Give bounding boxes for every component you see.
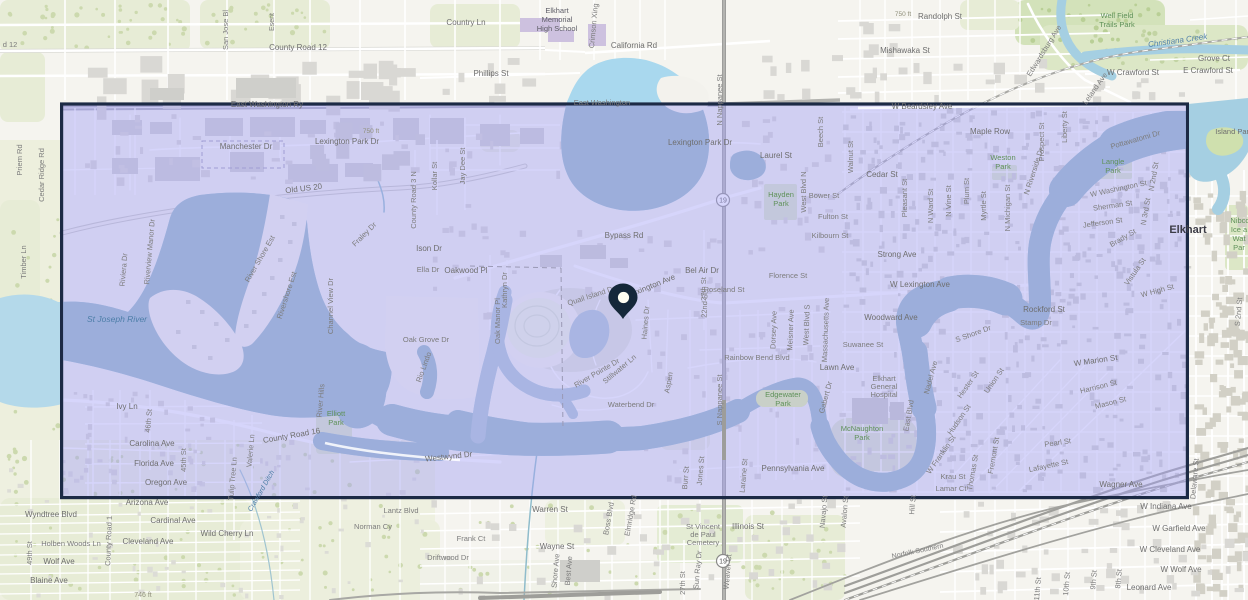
svg-text:California Rd: California Rd bbox=[611, 41, 657, 50]
svg-text:West Blvd N: West Blvd N bbox=[799, 171, 808, 212]
svg-text:Lamar Ct: Lamar Ct bbox=[936, 484, 968, 493]
svg-text:Fulton St: Fulton St bbox=[818, 212, 849, 221]
svg-text:Hospital: Hospital bbox=[870, 390, 897, 399]
svg-text:Cardinal Ave: Cardinal Ave bbox=[150, 516, 196, 525]
svg-text:N Ward St: N Ward St bbox=[926, 188, 935, 223]
svg-text:Warren St: Warren St bbox=[532, 505, 568, 514]
svg-text:Frank Ct: Frank Ct bbox=[457, 534, 487, 543]
svg-text:Strong Ave: Strong Ave bbox=[878, 250, 918, 259]
svg-text:Park: Park bbox=[995, 162, 1011, 171]
svg-text:8th St: 8th St bbox=[1113, 568, 1124, 589]
svg-text:Par: Par bbox=[1233, 243, 1245, 252]
svg-text:Laurel St: Laurel St bbox=[760, 151, 793, 160]
svg-text:Park: Park bbox=[854, 433, 870, 442]
svg-text:Hayden: Hayden bbox=[768, 190, 794, 199]
svg-text:Oak Manor Pl: Oak Manor Pl bbox=[493, 298, 502, 344]
svg-text:E Crawford St: E Crawford St bbox=[1183, 66, 1234, 75]
svg-text:Ice a: Ice a bbox=[1231, 225, 1248, 234]
svg-text:Cleveland Ave: Cleveland Ave bbox=[123, 537, 175, 546]
svg-text:High School: High School bbox=[537, 24, 578, 33]
svg-text:Krau St: Krau St bbox=[940, 472, 966, 481]
svg-text:Wagner Ave: Wagner Ave bbox=[1099, 480, 1143, 489]
svg-text:Roseland St: Roseland St bbox=[704, 285, 746, 294]
svg-text:Bower St: Bower St bbox=[809, 191, 840, 200]
svg-text:Plum St: Plum St bbox=[962, 177, 971, 204]
svg-text:Mishawaka St: Mishawaka St bbox=[880, 46, 931, 55]
svg-text:750 ft: 750 ft bbox=[363, 128, 379, 135]
svg-text:Stamp Dr: Stamp Dr bbox=[1020, 318, 1052, 327]
svg-text:Rockford St: Rockford St bbox=[1023, 305, 1066, 314]
svg-text:Memorial: Memorial bbox=[542, 15, 573, 24]
svg-text:Lexington Park Dr: Lexington Park Dr bbox=[668, 138, 732, 147]
svg-text:W Wolf Ave: W Wolf Ave bbox=[1160, 565, 1202, 574]
svg-text:Langle: Langle bbox=[1102, 157, 1125, 166]
svg-text:Cedar St: Cedar St bbox=[866, 170, 898, 179]
svg-text:San Jose Bl: San Jose Bl bbox=[221, 10, 230, 50]
svg-text:Park: Park bbox=[775, 399, 791, 408]
svg-text:East Washington Ry: East Washington Ry bbox=[231, 100, 303, 109]
svg-text:750 ft: 750 ft bbox=[895, 11, 911, 18]
svg-text:Florence St: Florence St bbox=[769, 271, 808, 280]
svg-text:Lantz Blvd: Lantz Blvd bbox=[383, 506, 418, 515]
svg-text:Norman Cy: Norman Cy bbox=[354, 522, 392, 531]
svg-text:Island Park: Island Park bbox=[1215, 127, 1248, 136]
svg-text:Waterbend Dr: Waterbend Dr bbox=[608, 400, 655, 409]
svg-text:W Garfield Ave: W Garfield Ave bbox=[1152, 524, 1206, 533]
svg-text:49th St: 49th St bbox=[25, 540, 34, 565]
svg-text:Country Ln: Country Ln bbox=[446, 18, 485, 27]
svg-text:Phillips St: Phillips St bbox=[473, 69, 509, 78]
svg-text:Nibco: Nibco bbox=[1230, 216, 1248, 225]
svg-text:Jay Dee St: Jay Dee St bbox=[458, 147, 467, 185]
svg-text:Rainbow Bend Blvd: Rainbow Bend Blvd bbox=[724, 353, 789, 362]
svg-text:Weston: Weston bbox=[990, 153, 1015, 162]
svg-text:Ison Dr: Ison Dr bbox=[416, 244, 442, 253]
svg-text:Bypass Rd: Bypass Rd bbox=[605, 231, 644, 240]
svg-text:N Nappanee St: N Nappanee St bbox=[715, 73, 724, 125]
svg-text:East Washington: East Washington bbox=[574, 98, 630, 107]
svg-text:W Beardsley Ave: W Beardsley Ave bbox=[892, 102, 953, 111]
svg-text:Oakwood Pl: Oakwood Pl bbox=[444, 266, 487, 275]
svg-text:W Indiana Ave: W Indiana Ave bbox=[1140, 502, 1192, 511]
svg-text:Lexington Park Dr: Lexington Park Dr bbox=[315, 137, 379, 146]
svg-text:Walnut St: Walnut St bbox=[846, 140, 855, 173]
svg-text:Kilbourn St: Kilbourn St bbox=[812, 231, 850, 240]
svg-text:Priem Rd: Priem Rd bbox=[15, 144, 24, 175]
svg-text:Illinois St: Illinois St bbox=[732, 522, 765, 531]
svg-text:Park: Park bbox=[773, 199, 789, 208]
svg-text:Cemetery: Cemetery bbox=[687, 538, 720, 547]
svg-text:Timber Ln: Timber Ln bbox=[19, 245, 28, 278]
svg-text:Kollar St: Kollar St bbox=[430, 161, 439, 190]
svg-text:S Nappanee St: S Nappanee St bbox=[715, 374, 724, 426]
svg-text:N Vine St: N Vine St bbox=[944, 184, 953, 216]
svg-text:Pleasant St: Pleasant St bbox=[900, 178, 909, 217]
svg-text:27th St: 27th St bbox=[678, 570, 687, 595]
svg-text:Wyndtree Blvd: Wyndtree Blvd bbox=[25, 510, 77, 519]
svg-text:Leonard Ave: Leonard Ave bbox=[1127, 583, 1172, 592]
svg-text:Well Field: Well Field bbox=[1101, 11, 1134, 20]
svg-text:d 12: d 12 bbox=[3, 40, 18, 49]
svg-text:Oregon Ave: Oregon Ave bbox=[145, 478, 188, 487]
svg-text:Wild Cherry Ln: Wild Cherry Ln bbox=[201, 529, 254, 538]
svg-text:Ivy Ln: Ivy Ln bbox=[116, 402, 137, 411]
svg-text:County Road 12: County Road 12 bbox=[269, 43, 327, 52]
svg-text:County Road 1: County Road 1 bbox=[103, 516, 114, 566]
svg-text:Park: Park bbox=[1105, 166, 1121, 175]
svg-text:Liberty St: Liberty St bbox=[1060, 110, 1069, 143]
svg-text:Grove Ct: Grove Ct bbox=[1198, 54, 1231, 63]
svg-text:Elkhart: Elkhart bbox=[545, 6, 569, 15]
svg-text:Manchester Dr: Manchester Dr bbox=[220, 142, 273, 151]
svg-text:Florida Ave: Florida Ave bbox=[134, 459, 174, 468]
svg-text:Myrtle St: Myrtle St bbox=[979, 190, 988, 221]
svg-text:45th St: 45th St bbox=[179, 447, 188, 472]
svg-text:Ella Dr: Ella Dr bbox=[417, 265, 440, 274]
svg-text:McNaughton: McNaughton bbox=[841, 424, 884, 433]
svg-text:N Michigan St: N Michigan St bbox=[1003, 184, 1012, 232]
svg-text:Wat: Wat bbox=[1232, 234, 1246, 243]
svg-text:W Cleveland Ave: W Cleveland Ave bbox=[1140, 545, 1201, 554]
svg-text:W Crawford St: W Crawford St bbox=[1107, 68, 1160, 77]
svg-text:Suwanee St: Suwanee St bbox=[843, 340, 884, 349]
svg-text:Dorsey Ave: Dorsey Ave bbox=[768, 311, 778, 350]
svg-text:Wolf Ave: Wolf Ave bbox=[43, 557, 75, 566]
svg-text:Arizona Ave: Arizona Ave bbox=[126, 498, 169, 507]
svg-text:Park: Park bbox=[328, 418, 344, 427]
svg-text:St Joseph River: St Joseph River bbox=[87, 314, 148, 324]
svg-text:9th St: 9th St bbox=[1088, 569, 1099, 590]
svg-text:Meisner Ave: Meisner Ave bbox=[785, 309, 795, 350]
svg-text:West Blvd S: West Blvd S bbox=[801, 304, 811, 345]
svg-text:Carolina Ave: Carolina Ave bbox=[129, 439, 175, 448]
svg-text:Maple Row: Maple Row bbox=[970, 127, 1010, 136]
svg-text:Trails Park: Trails Park bbox=[1099, 20, 1135, 29]
svg-text:Hill St: Hill St bbox=[907, 494, 918, 515]
svg-text:Edgewater: Edgewater bbox=[765, 390, 801, 399]
svg-text:Channel View Dr: Channel View Dr bbox=[326, 277, 335, 334]
svg-text:Lawn Ave: Lawn Ave bbox=[820, 363, 855, 372]
svg-text:Elkhart: Elkhart bbox=[1169, 224, 1207, 236]
svg-text:Oak Grove Dr: Oak Grove Dr bbox=[403, 335, 450, 344]
svg-text:Randolph St: Randolph St bbox=[918, 12, 963, 21]
svg-text:Beech St: Beech St bbox=[816, 116, 825, 147]
svg-text:Elliott: Elliott bbox=[327, 409, 346, 418]
svg-text:Wayne St: Wayne St bbox=[540, 542, 575, 551]
svg-text:27th St: 27th St bbox=[699, 276, 708, 301]
svg-text:County Road 3 N: County Road 3 N bbox=[409, 171, 418, 229]
svg-text:Holben Woods Ln: Holben Woods Ln bbox=[41, 539, 100, 548]
svg-text:746 ft: 746 ft bbox=[134, 592, 152, 599]
svg-text:Driftwood Dr: Driftwood Dr bbox=[427, 553, 469, 562]
svg-text:Woodward Ave: Woodward Ave bbox=[864, 313, 918, 322]
svg-text:Blaine Ave: Blaine Ave bbox=[30, 576, 68, 585]
svg-text:W Lexington Ave: W Lexington Ave bbox=[890, 280, 950, 289]
svg-text:Pennsylvania Ave: Pennsylvania Ave bbox=[761, 464, 825, 473]
svg-text:Cedar Ridge Rd: Cedar Ridge Rd bbox=[37, 148, 46, 202]
svg-text:Bel Air Dr: Bel Air Dr bbox=[685, 266, 719, 275]
svg-text:Esent: Esent bbox=[269, 13, 276, 31]
